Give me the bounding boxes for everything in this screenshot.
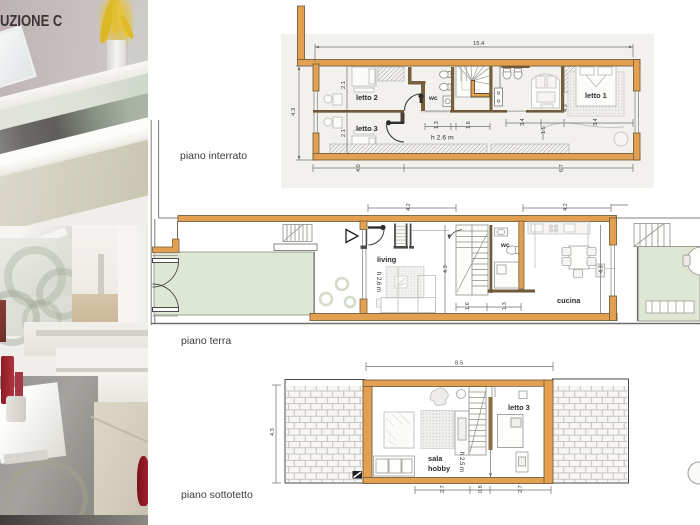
svg-text:2.1: 2.1 [341, 81, 347, 89]
svg-text:2.7: 2.7 [518, 485, 524, 493]
svg-text:1.3: 1.3 [502, 302, 508, 310]
svg-text:hobby: hobby [428, 464, 451, 473]
svg-text:h 2.6 m: h 2.6 m [431, 135, 454, 142]
svg-text:sala: sala [428, 454, 443, 463]
svg-text:4.3: 4.3 [291, 108, 297, 116]
svg-text:1.3: 1.3 [434, 121, 440, 129]
svg-text:wc: wc [428, 95, 438, 102]
svg-text:letto 3: letto 3 [356, 124, 378, 133]
svg-text:1.5: 1.5 [541, 126, 547, 134]
svg-text:4.3: 4.3 [443, 265, 449, 273]
svg-text:4.0: 4.0 [356, 164, 362, 172]
svg-text:8.5: 8.5 [455, 361, 463, 367]
svg-text:4.2: 4.2 [563, 203, 569, 211]
svg-text:2.7: 2.7 [440, 485, 446, 493]
svg-text:h 2.6 m: h 2.6 m [375, 272, 381, 292]
svg-text:letto 2: letto 2 [356, 93, 378, 102]
svg-text:3.4: 3.4 [520, 118, 526, 126]
svg-text:4.3: 4.3 [599, 265, 605, 273]
svg-text:1.6: 1.6 [465, 302, 471, 310]
svg-text:4.3: 4.3 [563, 104, 569, 112]
svg-text:3.4: 3.4 [593, 118, 599, 126]
svg-text:letto 1: letto 1 [585, 91, 607, 100]
svg-text:0.8: 0.8 [478, 485, 484, 493]
svg-text:15.4: 15.4 [473, 41, 485, 47]
svg-text:cucina: cucina [557, 296, 581, 305]
svg-text:letto 3: letto 3 [508, 403, 530, 412]
svg-text:4.3: 4.3 [270, 428, 276, 436]
svg-text:2.1: 2.1 [341, 129, 347, 137]
svg-text:4.2: 4.2 [406, 203, 412, 211]
svg-text:living: living [377, 255, 397, 264]
svg-text:1.6: 1.6 [466, 121, 472, 129]
svg-text:wc: wc [500, 242, 510, 249]
svg-text:h 2.5 m: h 2.5 m [458, 452, 464, 472]
svg-text:6.7: 6.7 [559, 164, 565, 172]
